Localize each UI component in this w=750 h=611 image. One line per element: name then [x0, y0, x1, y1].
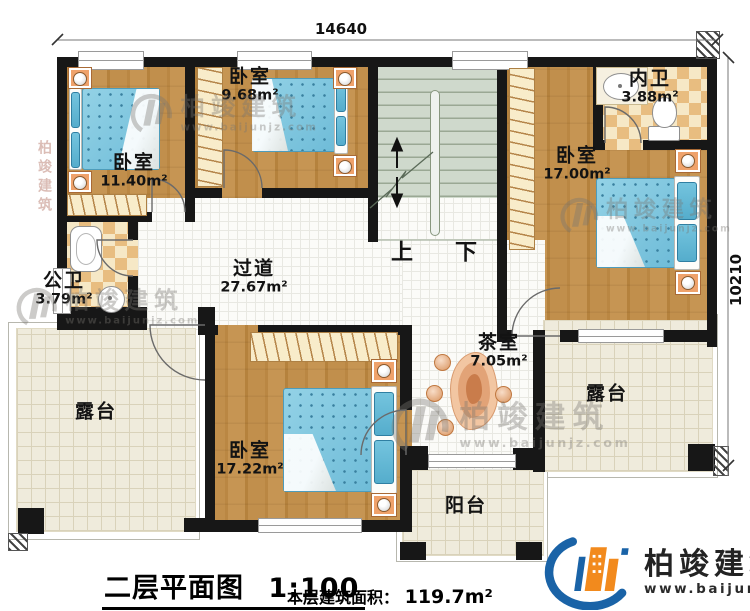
wall: [368, 57, 378, 242]
floor-area-block: 本层建筑面积： 119.7m²: [287, 584, 493, 608]
wall: [128, 222, 138, 240]
room-label-bedroom-bottom: 卧室 17.22m²: [216, 440, 283, 478]
room-area: 7.05m²: [470, 354, 527, 370]
bed-pillow: [71, 132, 80, 168]
tick: [52, 34, 63, 45]
wall: [643, 140, 717, 150]
wall: [707, 57, 717, 347]
corner-hatch: [8, 533, 28, 551]
window: [258, 518, 362, 533]
stool: [495, 386, 512, 403]
wall: [497, 250, 507, 340]
room-label-terrace-left: 露台: [75, 401, 117, 422]
room-label-bedroom-tm: 卧室 9.68m²: [221, 66, 278, 104]
brand-text-block: 柏竣建筑 www.baijunjz.com: [644, 548, 750, 597]
wall: [400, 446, 428, 470]
watermark-vertical: 柏竣建筑: [34, 140, 54, 216]
nightstand: [334, 156, 356, 176]
tick: [723, 52, 734, 63]
stair-down-label: 下: [455, 242, 477, 267]
wall: [262, 188, 378, 198]
floor-area-value: 119.7m²: [405, 586, 493, 608]
nightstand: [372, 494, 396, 516]
sink: [98, 286, 125, 313]
room-label-bedroom-tl: 卧室 11.40m²: [100, 152, 167, 190]
wall: [205, 325, 215, 532]
room-name: 卧室: [100, 152, 167, 173]
corner-hatch: [696, 31, 720, 59]
room-name: 卧室: [543, 145, 610, 166]
room-label-terrace-right: 露台: [586, 383, 628, 404]
room-label-tea-room: 茶室 7.05m²: [470, 332, 527, 370]
terrace-left-floor: [16, 328, 196, 532]
room-name: 公卫: [35, 270, 92, 291]
room-label-bath-inner: 内卫 3.88m²: [621, 68, 678, 106]
room-area: 17.22m²: [216, 462, 283, 478]
wardrobe: [250, 332, 398, 362]
nightstand: [334, 68, 356, 88]
wardrobe: [197, 67, 223, 187]
wall: [57, 57, 717, 67]
room-name: 卧室: [216, 440, 283, 461]
pillar: [18, 508, 44, 534]
nightstand: [676, 272, 700, 294]
room-name: 内卫: [621, 68, 678, 89]
floor-plan: 卧室 11.40m² 卧室 9.68m² 内卫 3.88m² 卧室 17.00m…: [0, 0, 750, 611]
brand-url: www.baijunjz.com: [644, 581, 750, 597]
room-name: 露台: [586, 383, 628, 404]
stool: [434, 354, 451, 371]
brand-logo-icon: [538, 534, 634, 610]
bed-pillow: [374, 440, 394, 484]
sliding-door-window: [428, 454, 516, 468]
room-label-hallway: 过道 27.67m²: [220, 258, 287, 296]
dimension-height: 10210: [727, 254, 745, 306]
stool: [426, 385, 443, 402]
room-area: 17.00m²: [543, 167, 610, 183]
room-name: 阳台: [445, 495, 487, 516]
toilet-tank: [648, 126, 680, 141]
wall: [513, 448, 545, 470]
bed-pillow: [71, 92, 80, 128]
room-area: 27.67m²: [220, 280, 287, 296]
tea-table-center: [466, 374, 482, 404]
room-name: 卧室: [221, 66, 278, 87]
wall: [185, 188, 222, 198]
window: [578, 329, 664, 343]
room-area: 9.68m²: [221, 88, 278, 104]
wardrobe: [67, 194, 147, 216]
nightstand: [69, 68, 91, 88]
bed-pillow: [336, 116, 346, 146]
room-name: 过道: [220, 258, 287, 279]
pillar: [688, 444, 715, 471]
corner-hatch: [713, 446, 729, 476]
wardrobe: [509, 68, 535, 250]
brand-name: 柏竣建筑: [644, 548, 750, 581]
room-label-bath-public: 公卫 3.79m²: [35, 270, 92, 308]
pillar: [400, 542, 426, 560]
wall: [400, 325, 412, 410]
room-name: 茶室: [470, 332, 527, 353]
room-label-balcony: 阳台: [445, 495, 487, 516]
room-area: 3.88m²: [621, 90, 678, 106]
wall: [360, 520, 412, 532]
bed-pillow: [374, 392, 394, 436]
wall: [497, 57, 507, 250]
stool: [437, 419, 454, 436]
bathtub: [70, 226, 102, 272]
floor-area-label: 本层建筑面积：: [287, 588, 399, 607]
stair-up-label: 上: [391, 242, 413, 267]
room-label-bedroom-right: 卧室 17.00m²: [543, 145, 610, 183]
nightstand: [676, 150, 700, 172]
brand-logo: 柏竣建筑 www.baijunjz.com: [538, 534, 750, 610]
bed-pillow: [677, 224, 697, 262]
plan-title: 二层平面图: [104, 573, 244, 604]
room-area: 11.40m²: [100, 174, 167, 190]
dimension-width: 14640: [315, 20, 367, 38]
nightstand: [372, 360, 396, 382]
room-area: 3.79m²: [35, 292, 92, 308]
stair-rail: [430, 90, 440, 236]
room-name: 露台: [75, 401, 117, 422]
nightstand: [69, 172, 91, 192]
bed-pillow: [677, 182, 697, 220]
wall: [205, 520, 260, 532]
pillar: [184, 518, 208, 532]
